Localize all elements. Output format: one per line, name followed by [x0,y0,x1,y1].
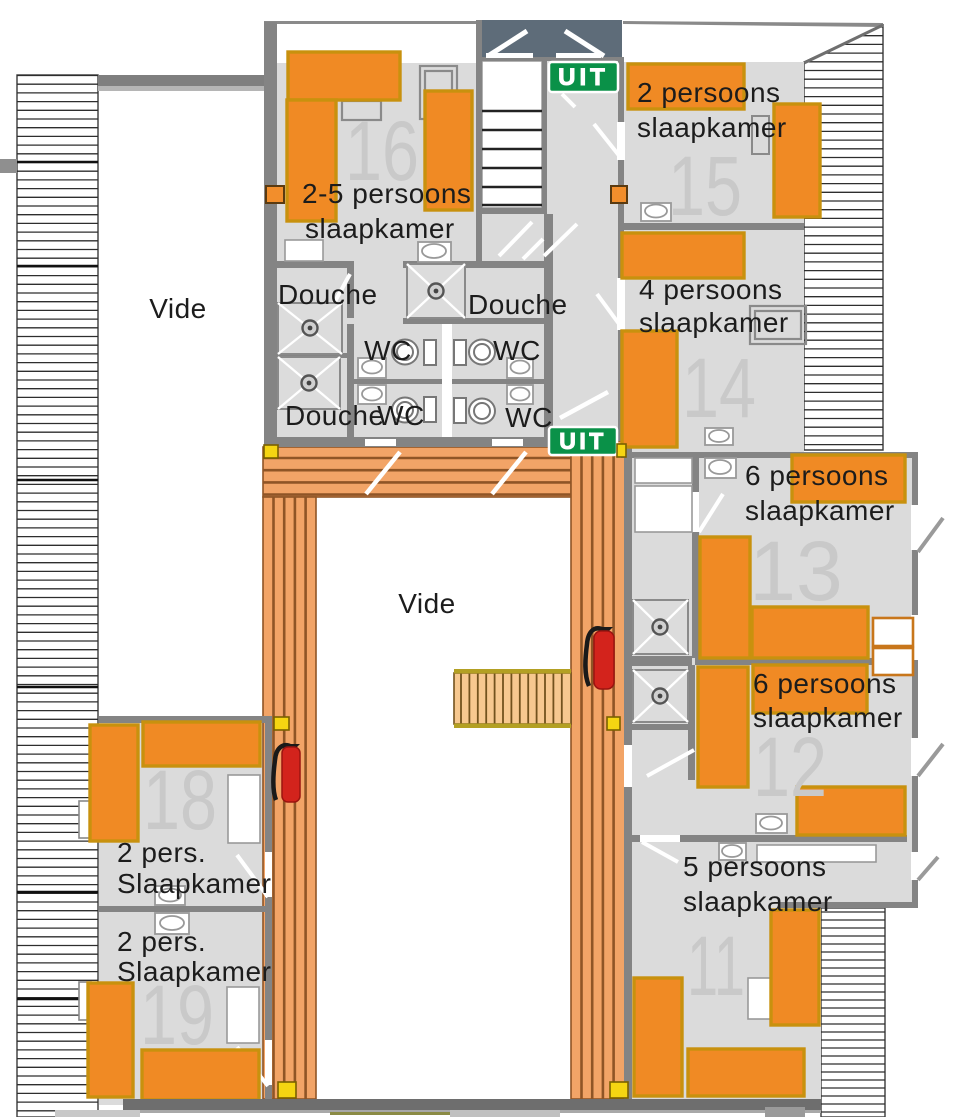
svg-text:slaapkamer: slaapkamer [753,702,903,733]
svg-text:14: 14 [682,341,756,435]
svg-text:WC: WC [377,400,425,431]
svg-text:UIT: UIT [558,64,609,91]
svg-text:Slaapkamer: Slaapkamer [117,956,271,987]
svg-text:13: 13 [749,524,842,618]
svg-text:WC: WC [364,335,412,366]
svg-text:18: 18 [143,753,217,847]
svg-text:slaapkamer: slaapkamer [745,495,895,526]
svg-text:slaapkamer: slaapkamer [639,307,789,338]
svg-text:2 persoons: 2 persoons [637,77,781,108]
svg-text:Slaapkamer: Slaapkamer [117,868,271,899]
svg-text:WC: WC [493,335,541,366]
svg-text:4 persoons: 4 persoons [639,274,783,305]
svg-text:15: 15 [668,139,742,233]
svg-text:2 pers.: 2 pers. [117,926,206,957]
svg-text:6 persoons: 6 persoons [745,460,889,491]
svg-text:12: 12 [753,720,827,814]
svg-text:WC: WC [505,402,553,433]
svg-text:Vide: Vide [149,293,207,324]
svg-text:6 persoons: 6 persoons [753,668,897,699]
svg-text:Vide: Vide [398,588,456,619]
svg-text:11: 11 [687,919,745,1013]
svg-text:slaapkamer: slaapkamer [683,886,833,917]
svg-text:UIT: UIT [559,428,607,454]
svg-text:Douche: Douche [278,279,378,310]
svg-text:slaapkamer: slaapkamer [637,112,787,143]
svg-text:5 persoons: 5 persoons [683,851,827,882]
svg-text:Douche: Douche [468,289,568,320]
svg-text:2-5 persoons: 2-5 persoons [302,178,471,209]
svg-text:2 pers.: 2 pers. [117,837,206,868]
svg-text:Douche: Douche [285,400,385,431]
svg-text:slaapkamer: slaapkamer [305,213,455,244]
